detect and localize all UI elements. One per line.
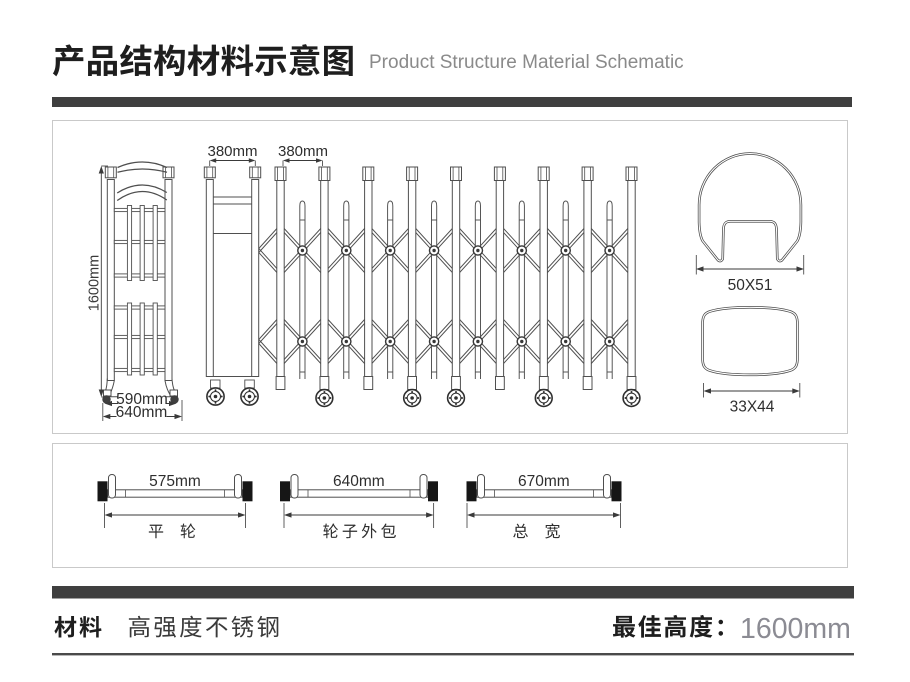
svg-text:640mm: 640mm [116,404,168,421]
svg-text:33X44: 33X44 [730,399,775,416]
svg-text:1600mm: 1600mm [740,613,851,645]
svg-text:575mm: 575mm [149,473,201,490]
svg-text:Product Structure Material Sch: Product Structure Material Schematic [369,52,684,73]
svg-text:50X51: 50X51 [728,277,773,294]
svg-text:640mm: 640mm [333,473,385,490]
svg-text:380mm: 380mm [278,143,328,160]
svg-text:1600mm: 1600mm [87,255,103,311]
svg-text:380mm: 380mm [207,143,257,160]
svg-text:670mm: 670mm [518,473,570,490]
